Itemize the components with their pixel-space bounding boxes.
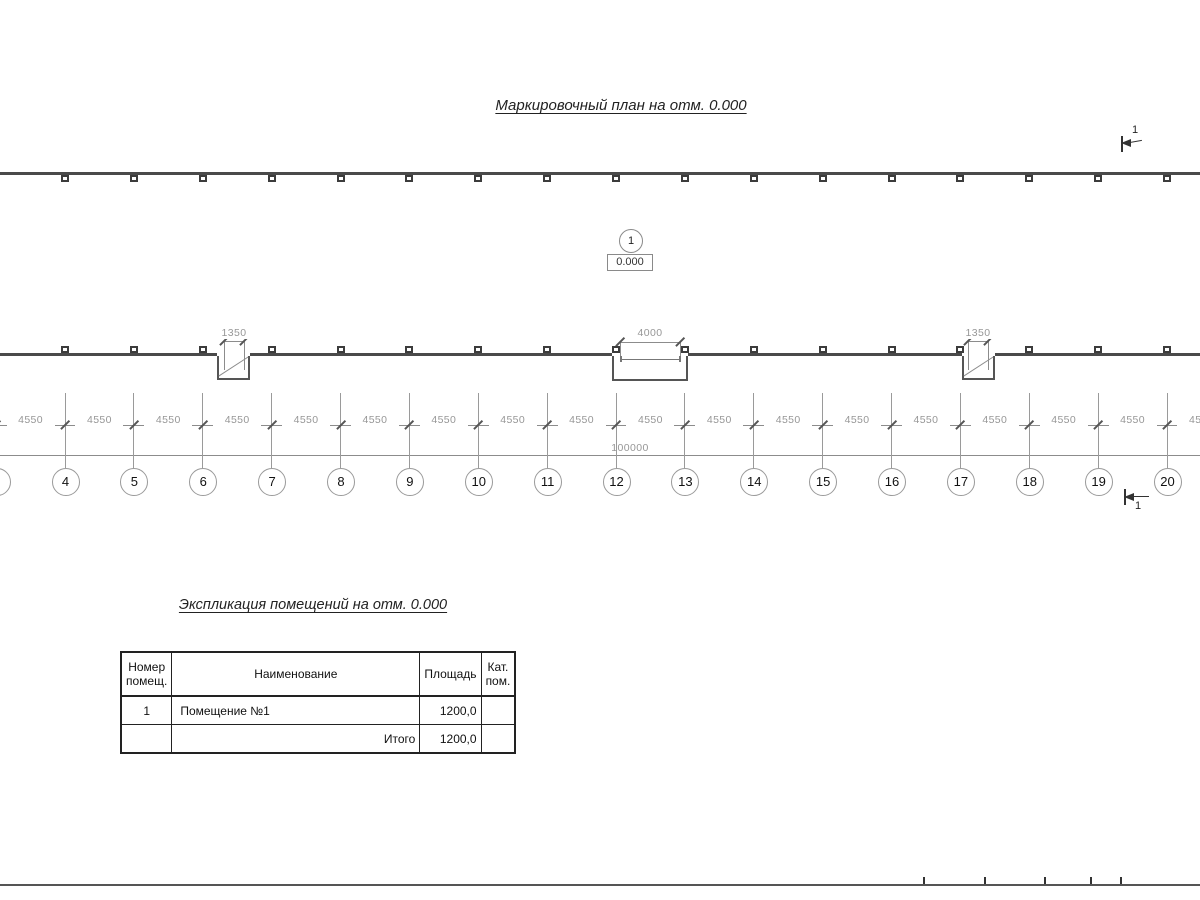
cell-empty <box>481 725 515 754</box>
bay-dimension-label: 4550 <box>213 414 261 426</box>
grid-line <box>1167 393 1168 468</box>
title-block-tick <box>984 877 986 884</box>
column-square <box>1163 175 1171 182</box>
column-square <box>888 346 896 353</box>
bay-dimension-label: 4550 <box>695 414 743 426</box>
opening-dim-label: 1350 <box>954 327 1002 339</box>
bay-dimension-label: 4550 <box>489 414 537 426</box>
grid-bubble: 18 <box>1016 468 1044 496</box>
grid-line <box>133 393 134 468</box>
column-square <box>681 346 689 353</box>
grid-bubble: 9 <box>396 468 424 496</box>
bay-dimension-label: 4550 <box>833 414 881 426</box>
grid-bubble: 12 <box>603 468 631 496</box>
column-square <box>61 346 69 353</box>
opening-dim-label: 4000 <box>626 327 674 339</box>
column-square <box>337 346 345 353</box>
schedule-title: Экспликация помещений на отм. 0.000 <box>150 597 476 613</box>
section-marker-bottom-label: 1 <box>1135 500 1141 512</box>
bay-dimension-label: 4550 <box>1109 414 1157 426</box>
grid-line <box>547 393 548 468</box>
dim-ext-line <box>244 341 245 370</box>
column-square <box>268 346 276 353</box>
schedule-header-row: Номер помещ. Наименование Площадь Кат. п… <box>121 652 515 696</box>
column-square <box>750 346 758 353</box>
grid-bubble: 11 <box>534 468 562 496</box>
section-leader-line <box>1132 496 1149 497</box>
bay-dimension-label: 4550 <box>902 414 950 426</box>
bay-dimension-label: 4550 <box>971 414 1019 426</box>
column-square <box>1025 175 1033 182</box>
bay-dimension-label: 4550 <box>1177 414 1200 426</box>
grid-bubble: 17 <box>947 468 975 496</box>
header-text: Номер <box>128 660 165 674</box>
dim-line-total <box>0 455 1200 456</box>
opening-dim-label: 1350 <box>210 327 258 339</box>
column-square <box>130 346 138 353</box>
bay-dimension-label: 4550 <box>351 414 399 426</box>
cell-total-area: 1200,0 <box>420 725 481 754</box>
grid-line <box>1029 393 1030 468</box>
bottom-wall-segment <box>0 353 217 356</box>
grid-bubble: 3 <box>0 468 11 496</box>
col-header-name: Наименование <box>172 652 420 696</box>
bay-dimension-label: 4550 <box>1040 414 1088 426</box>
bay-dimension-label: 4550 <box>144 414 192 426</box>
column-square <box>819 346 827 353</box>
bay-dimension-label: 4550 <box>558 414 606 426</box>
column-square <box>130 175 138 182</box>
room-schedule-table: Номер помещ. Наименование Площадь Кат. п… <box>120 651 516 754</box>
grid-line <box>65 393 66 468</box>
column-square <box>612 175 620 182</box>
column-square <box>405 175 413 182</box>
title-block-top-line <box>0 884 1200 886</box>
bottom-wall-segment <box>995 353 1200 356</box>
column-square <box>819 175 827 182</box>
cell-room-area: 1200,0 <box>420 696 481 725</box>
cell-total-label: Итого <box>172 725 420 754</box>
cell-empty <box>121 725 172 754</box>
grid-bubble: 6 <box>189 468 217 496</box>
bay-dimension-label: 4550 <box>7 414 55 426</box>
bay-dimension-label: 4550 <box>420 414 468 426</box>
grid-line <box>409 393 410 468</box>
header-text: пом. <box>486 674 511 688</box>
title-block-tick <box>1120 877 1122 884</box>
bottom-wall-segment <box>688 353 962 356</box>
grid-line <box>340 393 341 468</box>
grid-bubble: 7 <box>258 468 286 496</box>
column-square <box>543 175 551 182</box>
grid-bubble: 14 <box>740 468 768 496</box>
room-number-bubble: 1 <box>619 229 643 253</box>
dim-ext-line <box>968 341 969 370</box>
grid-line <box>891 393 892 468</box>
bay-dimension-label: 4550 <box>75 414 123 426</box>
column-square <box>1025 346 1033 353</box>
column-square <box>956 346 964 353</box>
elevation-label: 0.000 <box>607 254 653 271</box>
column-square <box>750 175 758 182</box>
top-wall <box>0 172 1200 175</box>
grid-line <box>822 393 823 468</box>
col-header-cat: Кат. пом. <box>481 652 515 696</box>
cell-room-cat <box>481 696 515 725</box>
section-marker-top-label: 1 <box>1132 124 1138 136</box>
gate-inner-tick <box>679 356 681 362</box>
bottom-wall-segment <box>250 353 612 356</box>
grid-bubble: 5 <box>120 468 148 496</box>
column-square <box>199 346 207 353</box>
grid-bubble: 16 <box>878 468 906 496</box>
dim-line-opening <box>620 342 680 343</box>
column-square <box>474 175 482 182</box>
bay-dimension-label: 4550 <box>626 414 674 426</box>
grid-bubble: 10 <box>465 468 493 496</box>
total-dim-label: 100000 <box>580 442 680 454</box>
grid-bubble: 20 <box>1154 468 1182 496</box>
dim-ext-line <box>988 341 989 370</box>
col-header-number: Номер помещ. <box>121 652 172 696</box>
column-square <box>474 346 482 353</box>
column-square <box>1094 175 1102 182</box>
grid-bubble: 15 <box>809 468 837 496</box>
grid-line <box>684 393 685 468</box>
grid-line <box>1098 393 1099 468</box>
column-square <box>337 175 345 182</box>
col-header-area: Площадь <box>420 652 481 696</box>
schedule-total-row: Итого 1200,0 <box>121 725 515 754</box>
grid-bubble: 13 <box>671 468 699 496</box>
dim-ext-line <box>224 341 225 370</box>
schedule-row: 1 Помещение №1 1200,0 <box>121 696 515 725</box>
plan-title: Маркировочный план на отм. 0.000 <box>421 97 821 114</box>
column-square <box>199 175 207 182</box>
grid-bubble: 8 <box>327 468 355 496</box>
grid-bubble: 4 <box>52 468 80 496</box>
title-block-tick <box>923 877 925 884</box>
grid-line <box>271 393 272 468</box>
cell-room-number: 1 <box>121 696 172 725</box>
column-square <box>268 175 276 182</box>
column-square <box>888 175 896 182</box>
column-square <box>1163 346 1171 353</box>
title-block-tick <box>1090 877 1092 884</box>
header-text: Кат. <box>487 660 508 674</box>
grid-bubble: 19 <box>1085 468 1113 496</box>
column-square <box>612 346 620 353</box>
grid-line <box>202 393 203 468</box>
cell-room-name: Помещение №1 <box>172 696 420 725</box>
column-square <box>681 175 689 182</box>
cad-drawing-sheet: Маркировочный план на отм. 0.000 1 1 0.0… <box>0 0 1200 900</box>
grid-line <box>753 393 754 468</box>
dim-ext-line <box>620 342 621 356</box>
column-square <box>61 175 69 182</box>
grid-line <box>616 393 617 468</box>
column-square <box>405 346 413 353</box>
column-square <box>543 346 551 353</box>
bay-dimension-label: 4550 <box>764 414 812 426</box>
bay-dimension-label: 4550 <box>282 414 330 426</box>
gate-inner-line <box>620 359 680 360</box>
grid-line <box>960 393 961 468</box>
column-square <box>956 175 964 182</box>
header-text: помещ. <box>126 674 167 688</box>
gate-inner-tick <box>620 356 622 362</box>
column-square <box>1094 346 1102 353</box>
grid-line <box>478 393 479 468</box>
title-block-tick <box>1044 877 1046 884</box>
